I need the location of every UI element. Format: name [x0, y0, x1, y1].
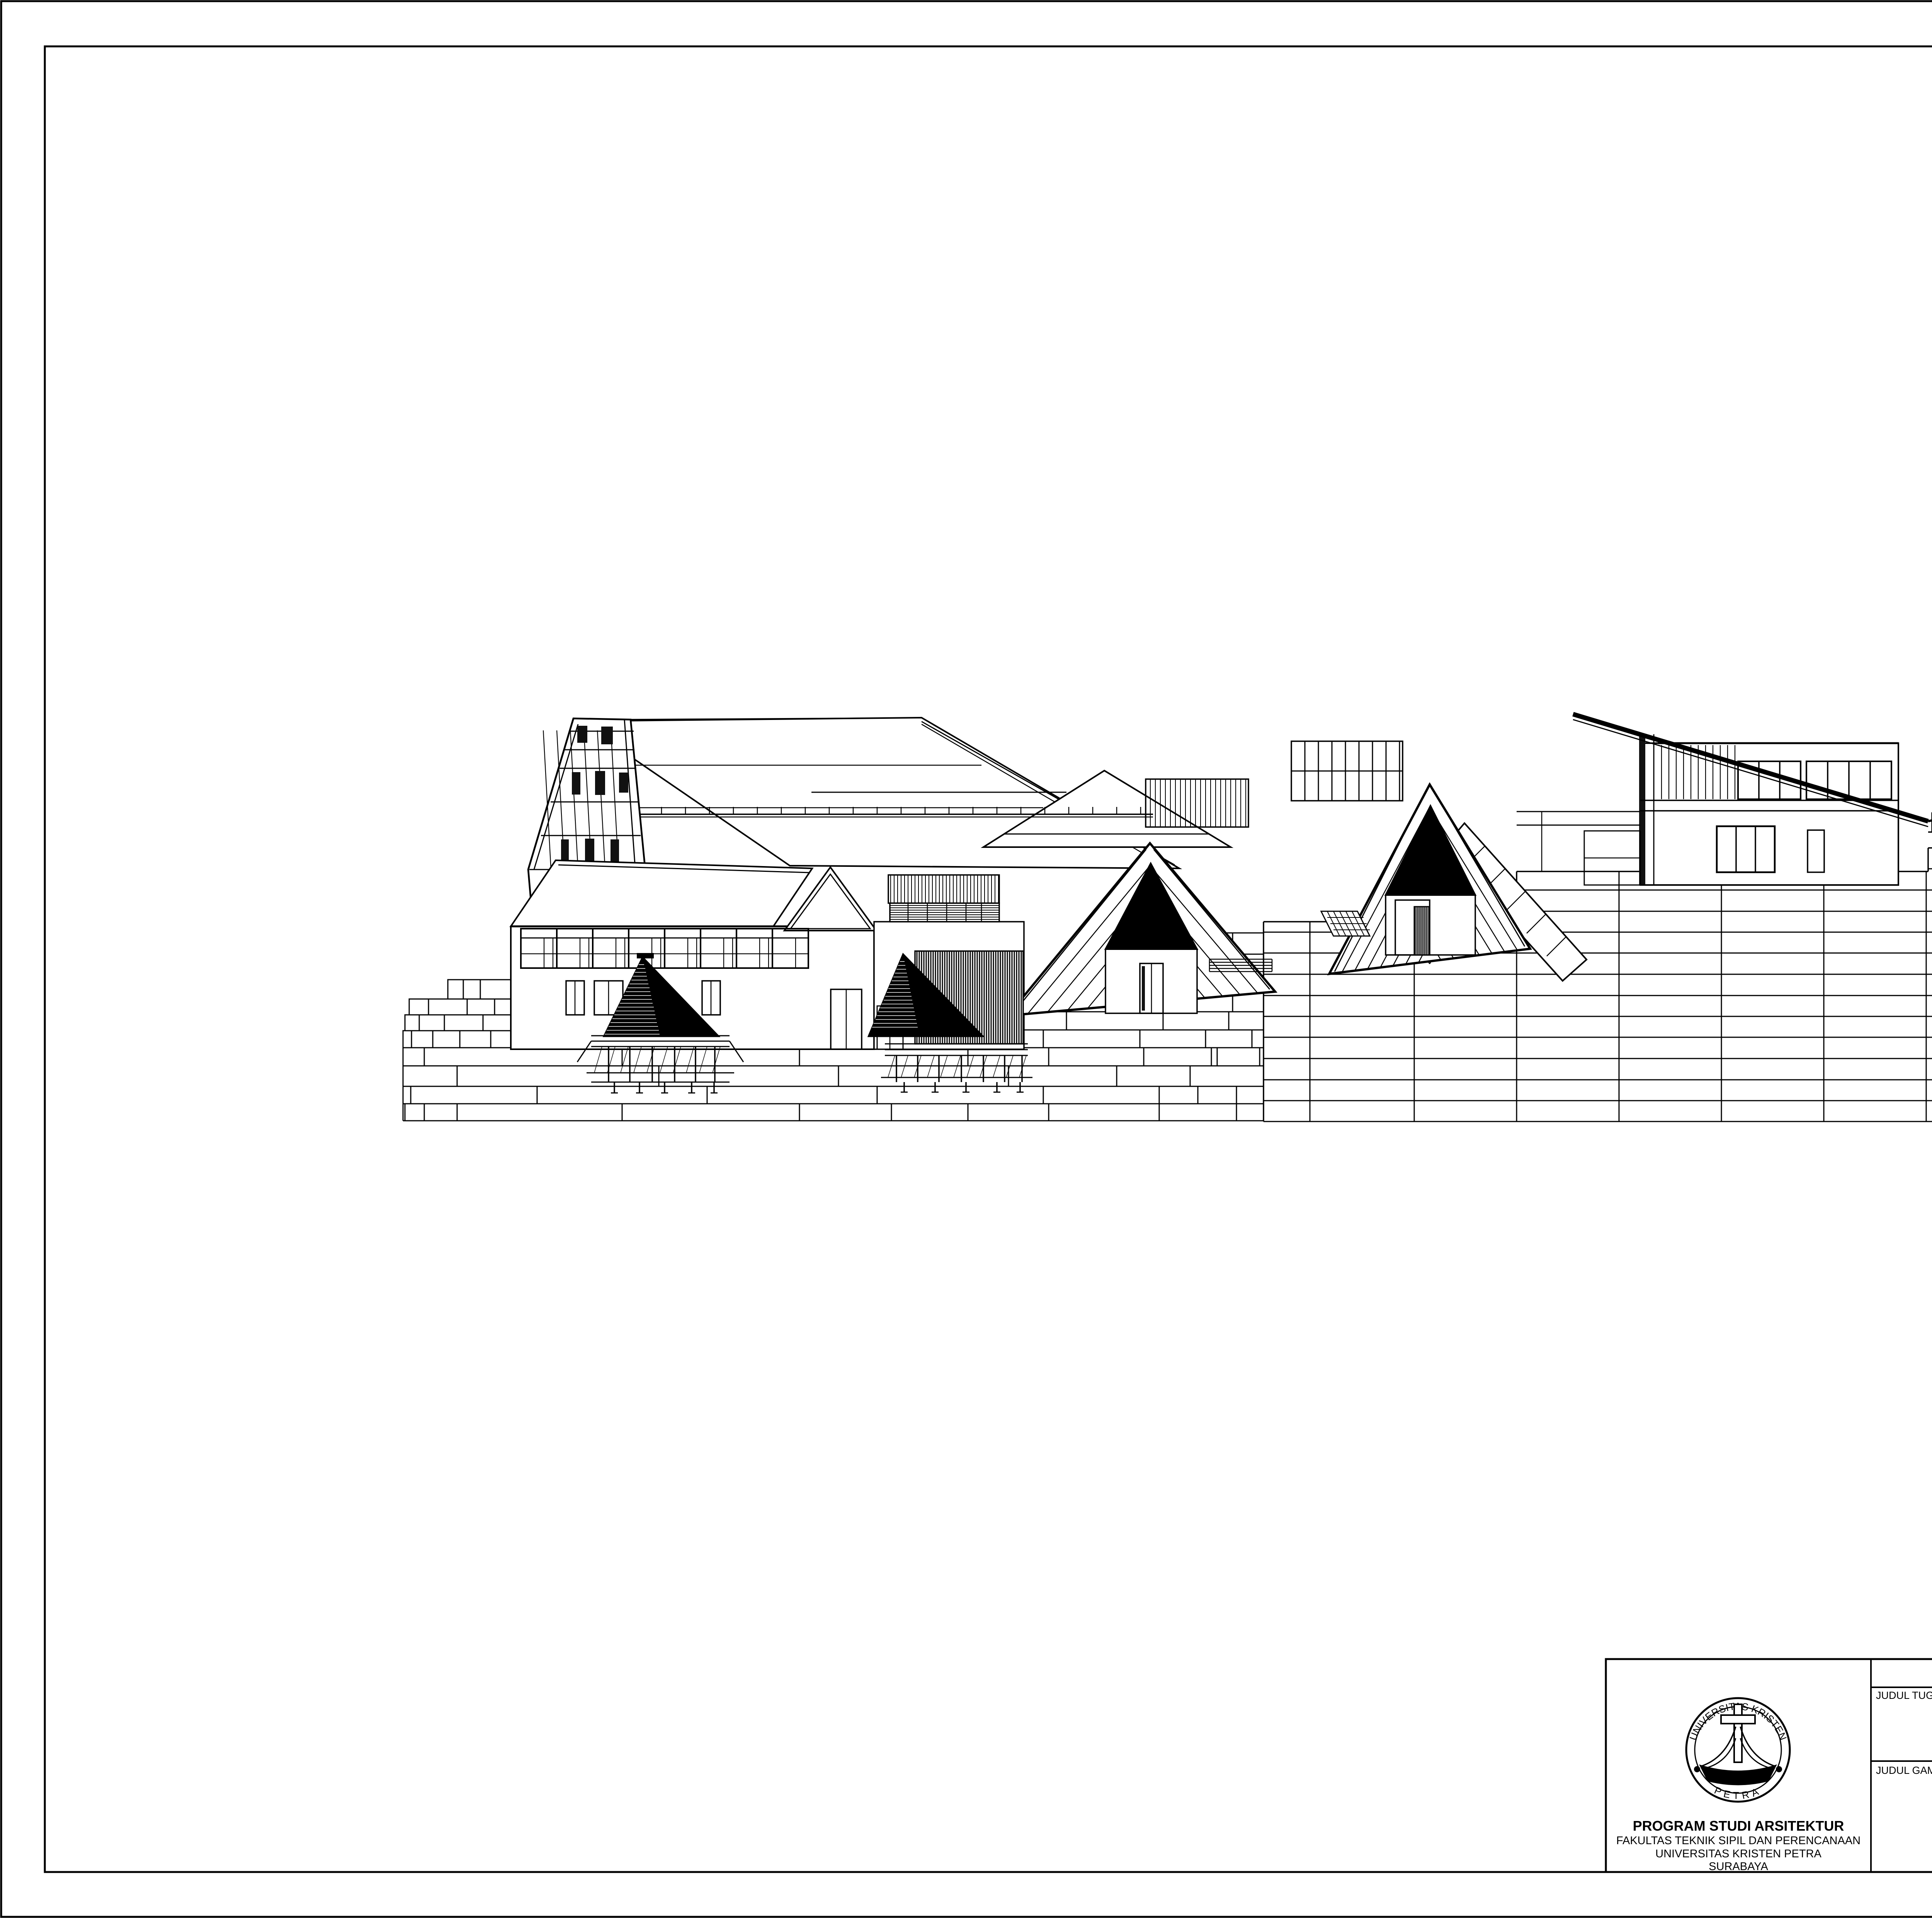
svg-text:JUDUL TUGAS: JUDUL TUGAS [1876, 1690, 1932, 1701]
svg-text:PROGRAM STUDI ARSITEKTUR: PROGRAM STUDI ARSITEKTUR [1633, 1818, 1844, 1834]
svg-text:SURABAYA: SURABAYA [1709, 1860, 1768, 1873]
svg-text:JUDUL GAMBAR: JUDUL GAMBAR [1876, 1765, 1932, 1776]
svg-text:UNIVERSITAS KRISTEN PETRA: UNIVERSITAS KRISTEN PETRA [1655, 1848, 1821, 1860]
svg-text:FAKULTAS TEKNIK SIPIL DAN PERE: FAKULTAS TEKNIK SIPIL DAN PERENCANAAN [1616, 1835, 1861, 1847]
